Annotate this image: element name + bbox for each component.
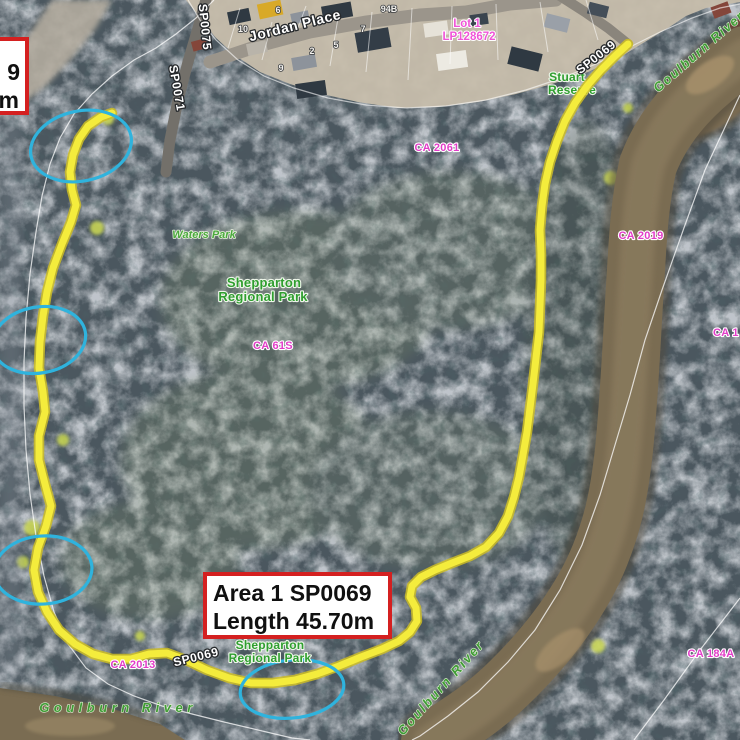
lot-label-lp128672: LP128672 <box>442 31 495 43</box>
house-number-10: 10 <box>238 24 248 34</box>
waters-park-label: Waters Park <box>172 229 236 241</box>
parcel-label-ca2019: CA 2019 <box>618 230 663 242</box>
house-number-6: 6 <box>275 5 280 15</box>
house-number-2: 2 <box>309 46 314 56</box>
parcel-label-ca2013: CA 2013 <box>110 659 155 671</box>
house-number-7: 7 <box>360 24 365 34</box>
regional-park-south-label-line2: Regional Park <box>229 651 312 665</box>
river-label-bottom-left: Goulburn River <box>39 700 197 715</box>
house-number-9: 9 <box>278 63 283 73</box>
regional-park-label-line2: Regional Park <box>218 289 308 304</box>
parcel-label-ca1-partial: CA 1 <box>713 327 739 339</box>
aerial-map-viewport: Stuart Reserve CA 2061 CA 2019 CA 1 CA 6… <box>0 0 740 740</box>
annotation-main-line1: Area 1 SP0069 <box>213 580 372 606</box>
house-number-94b: 94B <box>381 4 398 14</box>
lot-label-lot1: Lot 1 <box>453 18 481 30</box>
parcel-label-ca61s: CA 61S <box>253 340 293 352</box>
aerial-basemap: Stuart Reserve CA 2061 CA 2019 CA 1 CA 6… <box>0 0 740 740</box>
annotation-box-main: Area 1 SP0069 Length 45.70m <box>205 574 390 637</box>
parcel-label-ca184a: CA 184A <box>688 648 735 660</box>
regional-park-label-line1: Shepparton <box>227 275 301 290</box>
regional-park-south-label-line1: Shepparton <box>236 638 305 652</box>
annotation-partial-line2: m <box>0 87 19 113</box>
annotation-partial-line1: 9 <box>7 59 20 85</box>
annotation-main-line2: Length 45.70m <box>213 608 374 634</box>
house-number-5: 5 <box>333 40 338 50</box>
parcel-label-ca2061: CA 2061 <box>414 142 459 154</box>
annotation-box-partial: 9 m <box>0 39 27 113</box>
